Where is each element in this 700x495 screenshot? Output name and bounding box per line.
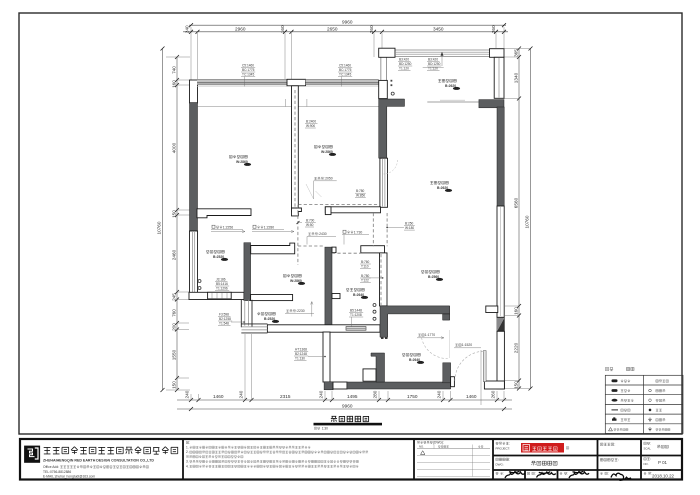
svg-text:1495: 1495: [347, 394, 358, 399]
svg-text:260: 260: [491, 390, 496, 398]
svg-text:240: 240: [185, 390, 190, 398]
svg-text:1:730: 1:730: [354, 230, 363, 234]
svg-text:TC:1345: TC:1345: [339, 73, 351, 77]
svg-text:200: 200: [172, 323, 177, 331]
svg-text:J3:186: J3:186: [216, 278, 226, 282]
svg-text:1460: 1460: [466, 394, 477, 399]
svg-text:T1:120: T1:120: [428, 67, 438, 71]
svg-text::: :: [614, 443, 615, 447]
svg-text:B5:1448: B5:1448: [350, 309, 362, 313]
svg-text:10760: 10760: [157, 221, 162, 234]
svg-text::: :: [650, 442, 651, 446]
svg-text:Office Add:: Office Add:: [43, 465, 59, 469]
svg-text::: :: [567, 472, 568, 476]
svg-text:B3:420: B3:420: [428, 58, 438, 62]
svg-text:2460: 2460: [172, 249, 177, 260]
svg-text:2315: 2315: [280, 394, 291, 399]
svg-text::: :: [608, 472, 609, 476]
svg-text:W:850: W:850: [356, 194, 365, 198]
svg-text::2050: :2050: [324, 177, 333, 181]
svg-text:SCAL: SCAL: [644, 447, 652, 451]
svg-text:4000: 4000: [172, 142, 177, 153]
svg-text:1550: 1550: [172, 349, 177, 360]
svg-text:BD:1250: BD:1250: [428, 62, 441, 66]
svg-text:260: 260: [369, 25, 374, 33]
svg-text:PROJECT:: PROJECT:: [496, 447, 511, 451]
svg-text:BD:1250: BD:1250: [399, 62, 412, 66]
svg-text:3450: 3450: [433, 26, 444, 31]
svg-text:9960: 9960: [342, 404, 353, 409]
svg-text:150: 150: [172, 210, 177, 218]
svg-text::2230: :2230: [296, 309, 305, 313]
svg-text:1:30: 1:30: [322, 426, 328, 430]
svg-text:W:900: W:900: [306, 124, 315, 128]
svg-text:240: 240: [437, 390, 442, 398]
svg-text:BC:1775: BC:1775: [242, 68, 255, 72]
svg-text:160: 160: [280, 25, 285, 33]
svg-text:150: 150: [514, 381, 519, 389]
svg-text:BC:1775: BC:1775: [339, 68, 352, 72]
svg-text:B:780: B:780: [356, 189, 365, 193]
svg-text:TEL:0756-8812886: TEL:0756-8812886: [43, 470, 71, 474]
svg-text:W:50: W:50: [306, 223, 314, 227]
svg-text:NO.: NO.: [419, 445, 424, 449]
svg-text:T1:130: T1:130: [295, 357, 305, 361]
svg-text:2.: 2.: [186, 450, 189, 454]
svg-text:B:250: B:250: [405, 222, 414, 226]
svg-text:240: 240: [319, 390, 324, 398]
svg-text:HT:1368: HT:1368: [295, 348, 307, 352]
svg-text:DWG:: DWG:: [496, 463, 504, 467]
svg-text:365: 365: [514, 49, 519, 57]
svg-text:T1:1208: T1:1208: [350, 313, 362, 317]
svg-text:6560: 6560: [514, 197, 519, 208]
svg-text::: :: [535, 472, 536, 476]
svg-text:160: 160: [172, 80, 177, 88]
svg-text:B2:1248: B2:1248: [295, 352, 307, 356]
svg-text:2018.10.22: 2018.10.22: [652, 473, 675, 478]
svg-text:W:180: W:180: [405, 226, 414, 230]
svg-text:1:1770: 1:1770: [425, 333, 435, 337]
svg-text::: :: [189, 441, 190, 445]
svg-text:1:1520: 1:1520: [462, 343, 472, 347]
svg-text:C5:1460: C5:1460: [339, 64, 351, 68]
svg-text:260: 260: [491, 25, 496, 33]
svg-text:9960: 9960: [342, 20, 353, 25]
svg-text:F3:598: F3:598: [219, 313, 229, 317]
svg-text:P 01: P 01: [658, 460, 668, 465]
svg-text:3.: 3.: [186, 460, 189, 464]
svg-text:B:700: B:700: [306, 219, 315, 223]
svg-text:2650: 2650: [327, 26, 338, 31]
svg-text:T:110: T:110: [361, 265, 369, 269]
svg-text::: :: [650, 457, 651, 461]
svg-text::2430: :2430: [318, 232, 327, 236]
svg-text:245: 245: [172, 293, 177, 301]
svg-text::: :: [509, 458, 510, 462]
svg-text:1340: 1340: [514, 72, 519, 83]
svg-text:T1:1296: T1:1296: [216, 287, 228, 291]
svg-text::: :: [618, 458, 619, 462]
svg-text:ZHUHAIHENGQIN RED EARTH DESIGN: ZHUHAIHENGQIN RED EARTH DESIGN CONSULTAT…: [43, 459, 154, 463]
svg-text:1750: 1750: [407, 394, 418, 399]
svg-text::: :: [503, 472, 504, 476]
svg-text:280: 280: [373, 390, 378, 398]
svg-text:150: 150: [172, 381, 177, 389]
svg-text:E-MAIL:zhuhai_hongtudi@163.com: E-MAIL:zhuhai_hongtudi@163.com: [43, 474, 95, 478]
svg-text:760: 760: [172, 309, 177, 317]
svg-text:B:760: B:760: [361, 260, 370, 264]
svg-text:10760: 10760: [525, 215, 530, 228]
svg-text:TC:1345: TC:1345: [242, 73, 254, 77]
svg-text:1:2256: 1:2256: [223, 225, 233, 229]
svg-text:B2:1258: B2:1258: [219, 317, 231, 321]
svg-text:1:2280: 1:2280: [264, 225, 274, 229]
svg-text:240: 240: [239, 390, 244, 398]
svg-text:T1:548: T1:548: [219, 322, 229, 326]
svg-text:240: 240: [185, 25, 190, 33]
svg-text:2960: 2960: [235, 26, 246, 31]
svg-text:740: 740: [172, 66, 177, 74]
svg-text:(DWG):: (DWG):: [433, 441, 444, 445]
svg-text:160: 160: [514, 307, 519, 315]
svg-text:4.: 4.: [186, 464, 189, 468]
svg-text:NO.: NO.: [644, 462, 649, 466]
svg-text:T1:120: T1:120: [399, 67, 409, 71]
svg-text:2220: 2220: [514, 342, 519, 353]
svg-text:B3:420: B3:420: [399, 58, 409, 62]
svg-text:B:2400: B:2400: [306, 120, 316, 124]
svg-text:B5:1416: B5:1416: [216, 282, 228, 286]
svg-text:B:780: B:780: [361, 274, 370, 278]
svg-text::: :: [509, 442, 510, 446]
svg-text:1.: 1.: [186, 445, 189, 449]
svg-text:T:122: T:122: [361, 279, 369, 283]
svg-text:1460: 1460: [213, 394, 224, 399]
svg-text:C5:1460: C5:1460: [242, 64, 254, 68]
